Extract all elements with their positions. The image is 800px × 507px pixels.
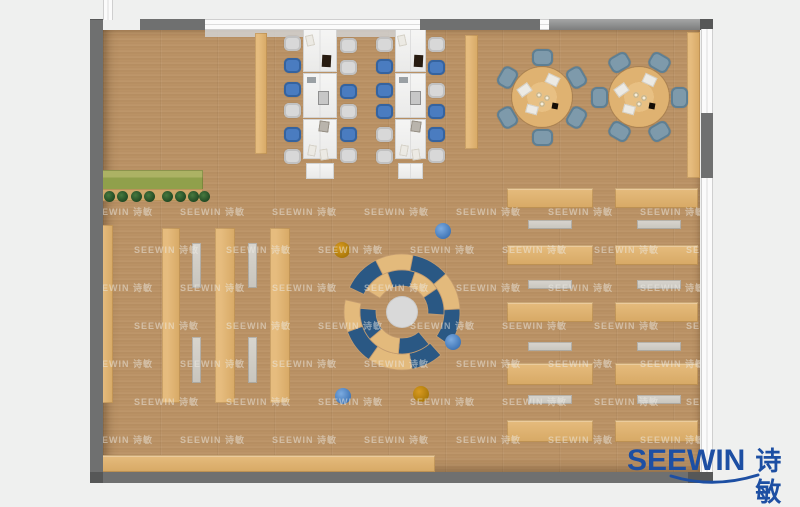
stool (413, 386, 429, 402)
cup (633, 92, 639, 98)
desk-chair (376, 83, 393, 98)
desk-end-table (306, 163, 334, 179)
reading-bench (637, 280, 681, 289)
wall-shelf (687, 32, 700, 178)
desk-item-laptop (414, 55, 424, 67)
desk-chair (428, 127, 445, 142)
desk-chair (284, 36, 301, 51)
cup (544, 95, 550, 101)
plant (131, 191, 142, 202)
reading-table-row (507, 245, 593, 265)
round-table-chair (591, 87, 608, 108)
reading-bench (248, 243, 257, 288)
reading-bench (248, 337, 257, 383)
desk-chair (428, 148, 445, 163)
plant (199, 191, 210, 202)
stool (435, 223, 451, 239)
desk-chair (376, 127, 393, 142)
wall-segment-bottom-wall (90, 472, 700, 483)
desk-chair (376, 104, 393, 119)
desk-item-monitor (318, 91, 329, 105)
column-pillar (255, 33, 267, 154)
desk-item-paper (319, 148, 328, 160)
desk-chair (284, 82, 301, 97)
round-table-chair (532, 129, 553, 146)
reading-bench (528, 220, 572, 229)
center-platform (387, 297, 417, 327)
reading-bench (637, 342, 681, 351)
stool (445, 334, 461, 350)
planter (98, 170, 203, 190)
plant (175, 191, 186, 202)
desk-item-device (399, 77, 408, 83)
reading-table-row (507, 420, 593, 442)
desk-chair (284, 127, 301, 142)
logo-cjk: 诗敏 (755, 446, 800, 507)
window-entry-strip (103, 0, 113, 20)
reading-table-row (615, 245, 698, 265)
desk-chair (340, 127, 357, 142)
reading-bench (192, 243, 201, 288)
table-item-black (552, 103, 559, 110)
desk-chair (340, 38, 357, 53)
desk-item-device (307, 77, 316, 83)
cup (636, 101, 642, 107)
window-right-window-upper (701, 29, 713, 113)
round-table-chair (532, 49, 553, 66)
wall-segment-top-beam (549, 19, 713, 30)
wall-segment-bottom-left-corner (90, 472, 103, 483)
wall-segment-top-wall-b (420, 19, 540, 30)
desk-chair (340, 148, 357, 163)
cup (641, 95, 647, 101)
stool (335, 388, 351, 404)
desk-item-tablet (318, 120, 329, 132)
reading-bench (637, 395, 681, 404)
desk-item-laptop (322, 55, 332, 67)
desk-item-tablet (410, 120, 421, 132)
desk-chair (284, 58, 301, 73)
desk-chair (340, 84, 357, 99)
table-item-black (649, 103, 656, 110)
plant (144, 191, 155, 202)
reading-table-row (507, 363, 593, 385)
bookshelf (270, 228, 290, 403)
desk-chair (376, 149, 393, 164)
desk-item-monitor (410, 91, 421, 105)
seat-arc-segment (344, 300, 362, 332)
desk-chair (340, 104, 357, 119)
reading-bench (192, 337, 201, 383)
reading-table-row (507, 188, 593, 208)
reading-bench (528, 342, 572, 351)
column-pillar (465, 35, 478, 149)
round-table-chair (671, 87, 688, 108)
desk-chair (284, 103, 301, 118)
plant (162, 191, 173, 202)
desk-chair (428, 104, 445, 119)
desk-chair (284, 149, 301, 164)
window-right-window-lower (701, 178, 713, 472)
wall-segment-right-wall-segment (701, 113, 713, 178)
desk-chair (376, 59, 393, 74)
reading-bench (528, 280, 572, 289)
reading-table-row (615, 420, 698, 442)
reading-table-row (507, 302, 593, 322)
wall-segment-top-wall-a (140, 19, 206, 30)
window-top-window-small (540, 19, 549, 30)
reading-table-row (615, 188, 698, 208)
desk-end-table (398, 163, 423, 179)
plant (104, 191, 115, 202)
bookshelf (215, 228, 235, 403)
desk-chair (340, 60, 357, 75)
plant (117, 191, 128, 202)
reading-table-row (615, 302, 698, 322)
desk-chair (376, 37, 393, 52)
stool (334, 242, 350, 258)
reading-bench (528, 395, 572, 404)
floor-plan-canvas: SEEWIN 诗敏SEEWIN 诗敏SEEWIN 诗敏SEEWIN 诗敏SEEW… (0, 0, 800, 507)
plant (188, 191, 199, 202)
floor-plan: SEEWIN 诗敏SEEWIN 诗敏SEEWIN 诗敏SEEWIN 诗敏SEEW… (0, 0, 800, 507)
desk-chair (428, 37, 445, 52)
reading-bench (637, 220, 681, 229)
wall-segment-left-wall (90, 20, 103, 483)
desk-chair (428, 60, 445, 75)
seewin-logo: SEEWIN 诗敏 (627, 444, 800, 507)
logo-swoosh (669, 473, 761, 487)
window-top-window (205, 19, 420, 30)
bookshelf (162, 228, 180, 403)
wall-shelf (98, 455, 435, 472)
cup (536, 92, 542, 98)
desk-chair (428, 83, 445, 98)
desk-item-paper (411, 148, 420, 160)
cup (539, 101, 545, 107)
reading-table-row (615, 363, 698, 385)
